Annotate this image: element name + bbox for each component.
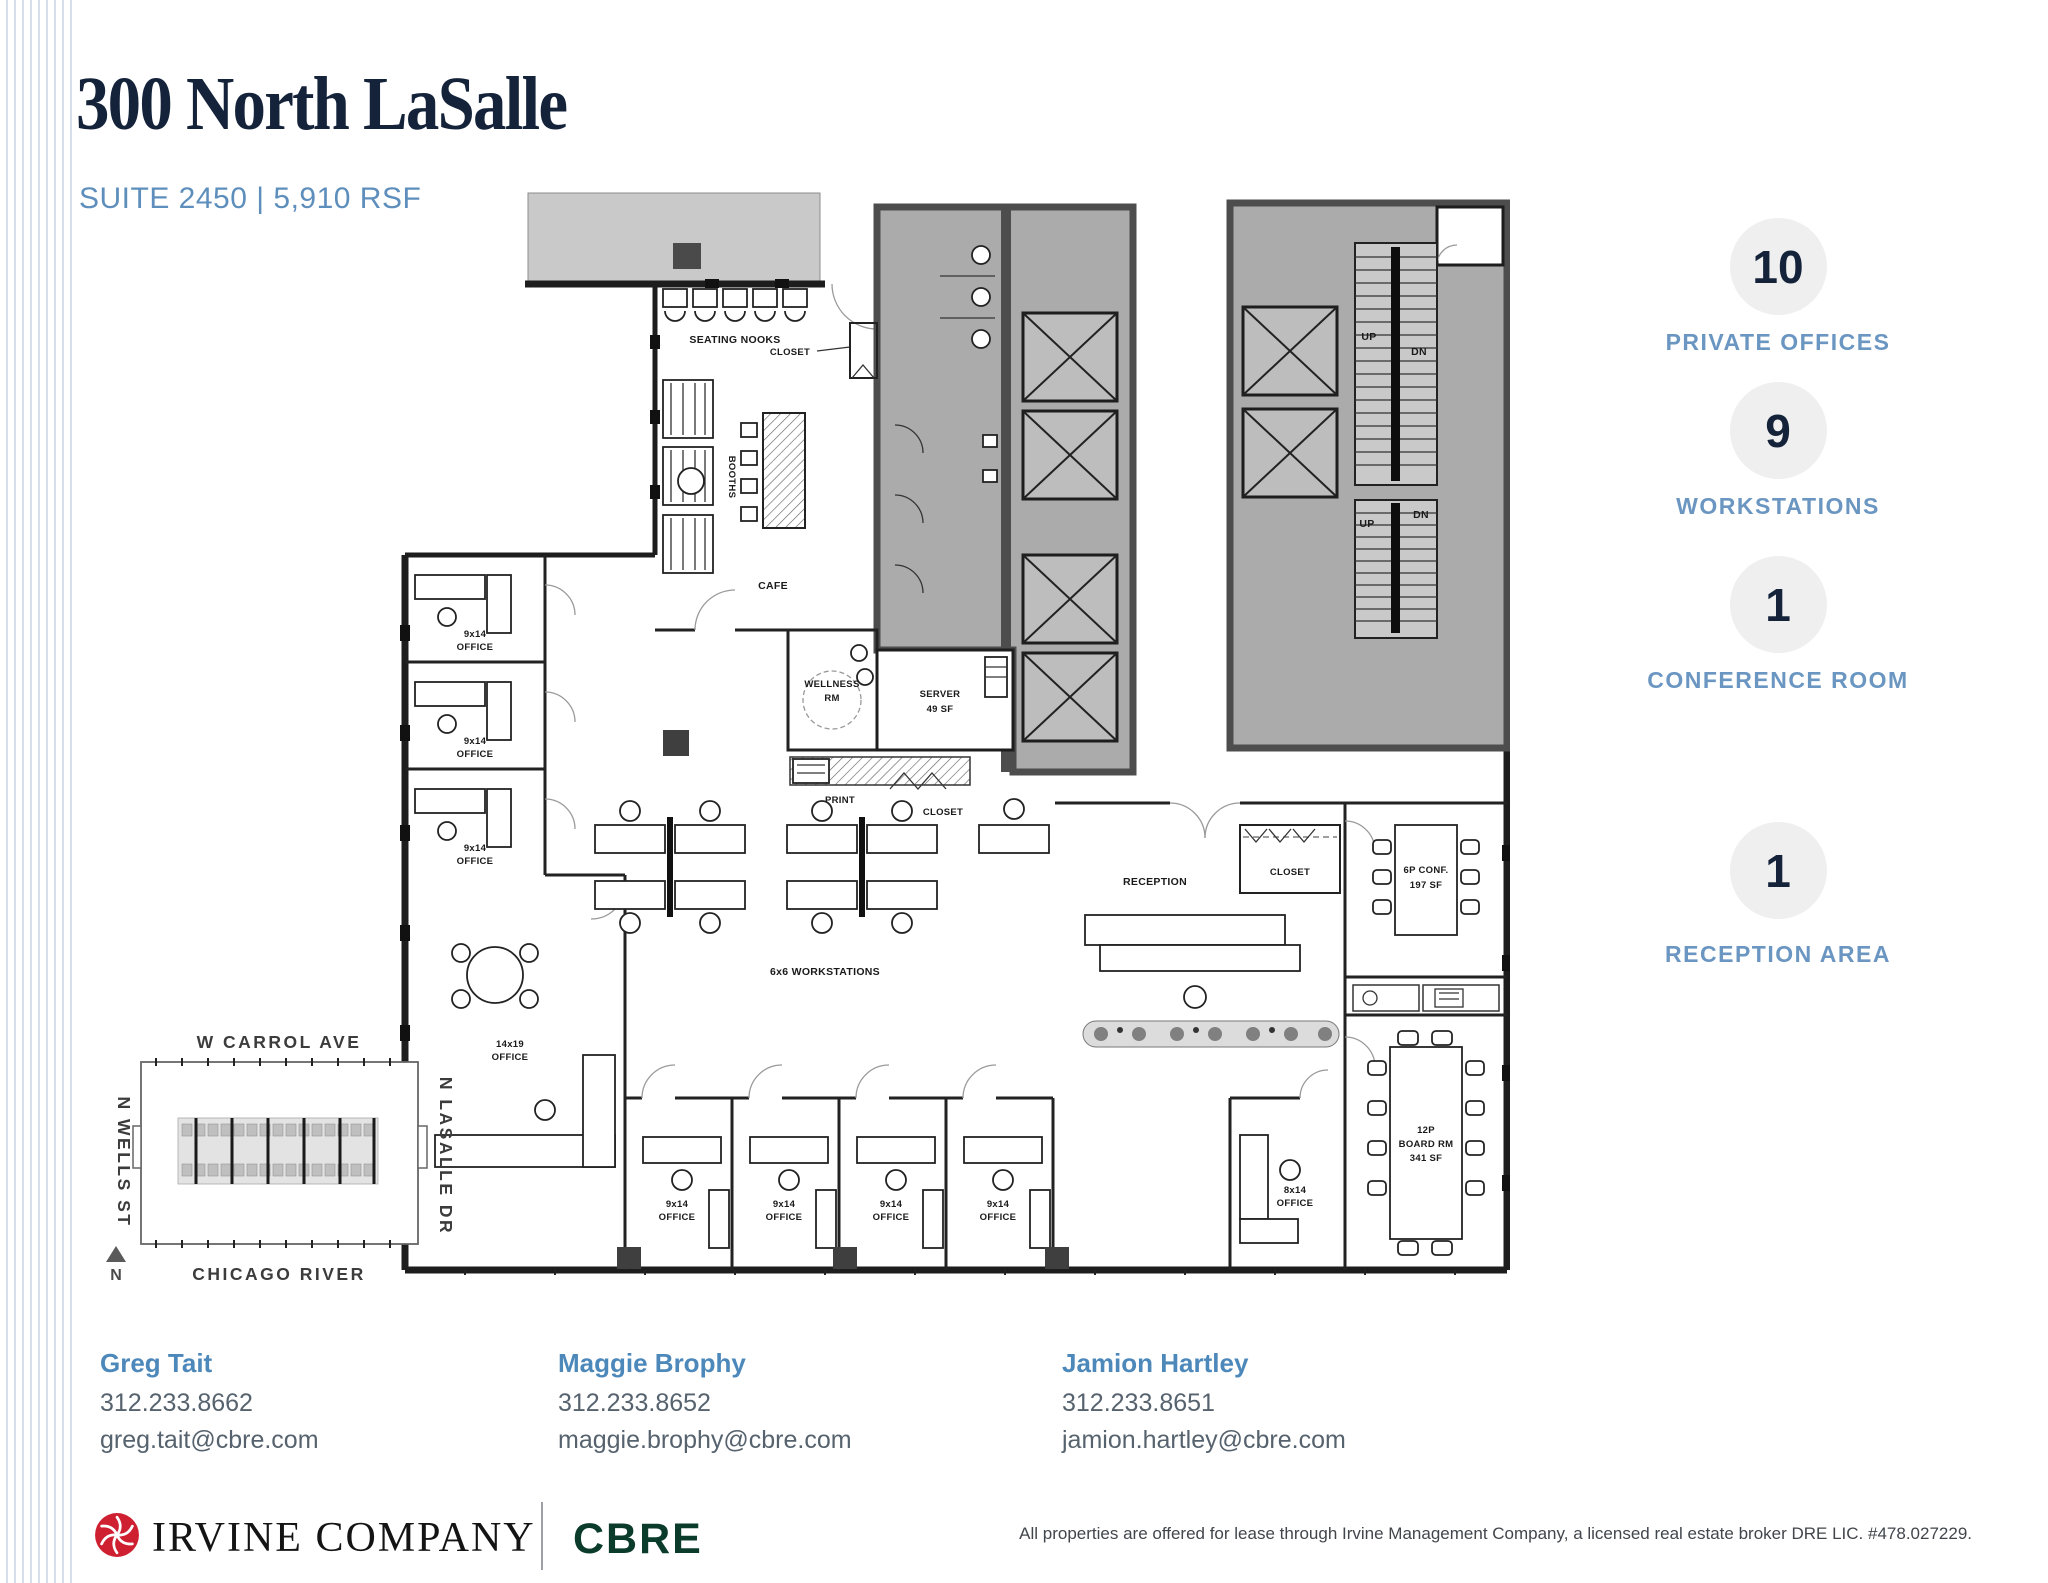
footer-divider	[541, 1502, 543, 1570]
closet-label: CLOSET	[923, 807, 963, 818]
stat-label: CONFERENCE ROOM	[1568, 667, 1988, 694]
closet-label: CLOSET	[1270, 867, 1310, 878]
contact-email[interactable]: jamion.hartley@cbre.com	[1062, 1426, 1346, 1455]
office-label: 9x14	[773, 1199, 796, 1210]
floor-plan: UP DN UP DN SEATING NOOKS CLOSET	[395, 185, 1510, 1275]
conference-6p: 6P CONF. 197 SF	[1345, 803, 1507, 977]
stairwell-upper: UP DN	[1355, 243, 1437, 485]
stat-circle: 10	[1730, 218, 1827, 315]
contact-card: Maggie Brophy 312.233.8652 maggie.brophy…	[558, 1348, 852, 1455]
office-8x14: 8x14 OFFICE	[1230, 1070, 1328, 1270]
stat-label: PRIVATE OFFICES	[1568, 329, 1988, 356]
office-14x19: 14x19 OFFICE	[435, 875, 625, 1270]
reception: RECEPTION	[663, 730, 1345, 1047]
office-label: OFFICE	[980, 1212, 1017, 1223]
board-label: 12P	[1417, 1125, 1435, 1136]
stairwell-lower: UP DN	[1355, 500, 1437, 638]
offices-west-wing: 9x14 OFFICE 9x14 OFFICE 9x14 OFFICE	[405, 555, 575, 875]
building-footprint	[133, 1058, 427, 1248]
server-label: 49 SF	[927, 704, 954, 715]
office-label: 14x19	[496, 1039, 524, 1050]
location-map: W CARROL AVE	[96, 1030, 462, 1296]
stair-up-label: UP	[1359, 518, 1374, 530]
contact-name: Jamion Hartley	[1062, 1348, 1346, 1379]
server-label: SERVER	[920, 689, 961, 700]
flyer-page: { "header": { "title": "300 North LaSall…	[0, 0, 2048, 1583]
board-label: BOARD RM	[1399, 1139, 1454, 1150]
kitchenette	[1353, 985, 1499, 1011]
office-label: OFFICE	[457, 856, 494, 867]
office-label: OFFICE	[457, 642, 494, 653]
office-label: OFFICE	[873, 1212, 910, 1223]
contact-phone: 312.233.8662	[100, 1389, 319, 1418]
core-stairs-elevators: UP DN UP DN	[1230, 203, 1507, 748]
stat-private-offices: 10 PRIVATE OFFICES	[1568, 218, 1988, 356]
reception-label: RECEPTION	[1123, 876, 1187, 888]
stat-reception-area: 1 RECEPTION AREA	[1568, 822, 1988, 968]
board-room-12p: 12P BOARD RM 341 SF	[1345, 977, 1507, 1270]
contact-email[interactable]: greg.tait@cbre.com	[100, 1426, 319, 1455]
booths-label: BOOTHS	[726, 456, 737, 498]
stair-dn-label: DN	[1411, 346, 1427, 358]
stat-conference-room: 1 CONFERENCE ROOM	[1568, 556, 1988, 694]
seating-nooks: SEATING NOOKS	[663, 289, 807, 346]
office-label: 8x14	[1284, 1185, 1307, 1196]
contact-card: Greg Tait 312.233.8662 greg.tait@cbre.co…	[100, 1348, 319, 1455]
street-label-bottom: CHICAGO RIVER	[192, 1264, 365, 1284]
cafe: CLOSET BOOTHS CAFE	[655, 323, 877, 630]
stair-dn-label: DN	[1413, 509, 1429, 521]
contact-card: Jamion Hartley 312.233.8651 jamion.hartl…	[1062, 1348, 1346, 1455]
conf-label: 6P CONF.	[1404, 865, 1449, 876]
stat-label: WORKSTATIONS	[1568, 493, 1988, 520]
office-label: 9x14	[464, 736, 487, 747]
stat-circle: 1	[1730, 822, 1827, 919]
stat-circle: 9	[1730, 382, 1827, 479]
offices-bottom-row: 9x14 OFFICE 9x14 OFFICE 9x14 OFFICE 9x14…	[617, 1065, 1069, 1270]
office-label: OFFICE	[659, 1212, 696, 1223]
stat-workstations: 9 WORKSTATIONS	[1568, 382, 1988, 520]
stat-circle: 1	[1730, 556, 1827, 653]
irvine-company-logo-icon	[94, 1512, 140, 1558]
suite-subtitle: SUITE 2450 | 5,910 RSF	[79, 182, 421, 216]
irvine-company-wordmark: IRVINE COMPANY	[152, 1514, 536, 1562]
office-label: OFFICE	[1277, 1198, 1314, 1209]
closet-label: CLOSET	[770, 347, 810, 358]
north-arrow-icon: N	[106, 1246, 126, 1284]
wellness-room: WELLNESS RM	[788, 630, 877, 750]
wellness-label: RM	[824, 693, 839, 704]
board-label: 341 SF	[1410, 1153, 1442, 1164]
page-title: 300 North LaSalle	[76, 64, 566, 144]
street-label-top: W CARROL AVE	[197, 1032, 362, 1052]
workstations-label: 6x6 WORKSTATIONS	[770, 966, 880, 978]
office-label: 9x14	[987, 1199, 1010, 1210]
stat-label: RECEPTION AREA	[1568, 941, 1988, 968]
contact-email[interactable]: maggie.brophy@cbre.com	[558, 1426, 852, 1455]
contact-name: Greg Tait	[100, 1348, 319, 1379]
stair-up-label: UP	[1361, 331, 1376, 343]
street-label-left: N WELLS ST	[114, 1097, 134, 1228]
edge-pinstripes	[0, 0, 78, 1583]
contact-phone: 312.233.8651	[1062, 1389, 1346, 1418]
server-room: SERVER 49 SF	[877, 650, 1013, 750]
office-label: OFFICE	[457, 749, 494, 760]
contact-name: Maggie Brophy	[558, 1348, 852, 1379]
street-label-right: N LASALLE DR	[436, 1077, 456, 1235]
closet-right: CLOSET	[1240, 825, 1340, 893]
office-label: 9x14	[880, 1199, 903, 1210]
office-label: 9x14	[666, 1199, 689, 1210]
office-label: OFFICE	[492, 1052, 529, 1063]
wellness-label: WELLNESS	[804, 679, 859, 690]
contact-phone: 312.233.8652	[558, 1389, 852, 1418]
legal-disclaimer: All properties are offered for lease thr…	[672, 1524, 1972, 1544]
cafe-label: CAFE	[758, 580, 788, 592]
north-label: N	[110, 1267, 122, 1284]
office-label: 9x14	[464, 843, 487, 854]
workstations: 6x6 WORKSTATIONS	[595, 799, 1049, 978]
seating-nooks-label: SEATING NOOKS	[689, 334, 780, 346]
office-label: OFFICE	[766, 1212, 803, 1223]
conf-label: 197 SF	[1410, 880, 1442, 891]
office-label: 9x14	[464, 629, 487, 640]
terrace	[525, 193, 825, 288]
